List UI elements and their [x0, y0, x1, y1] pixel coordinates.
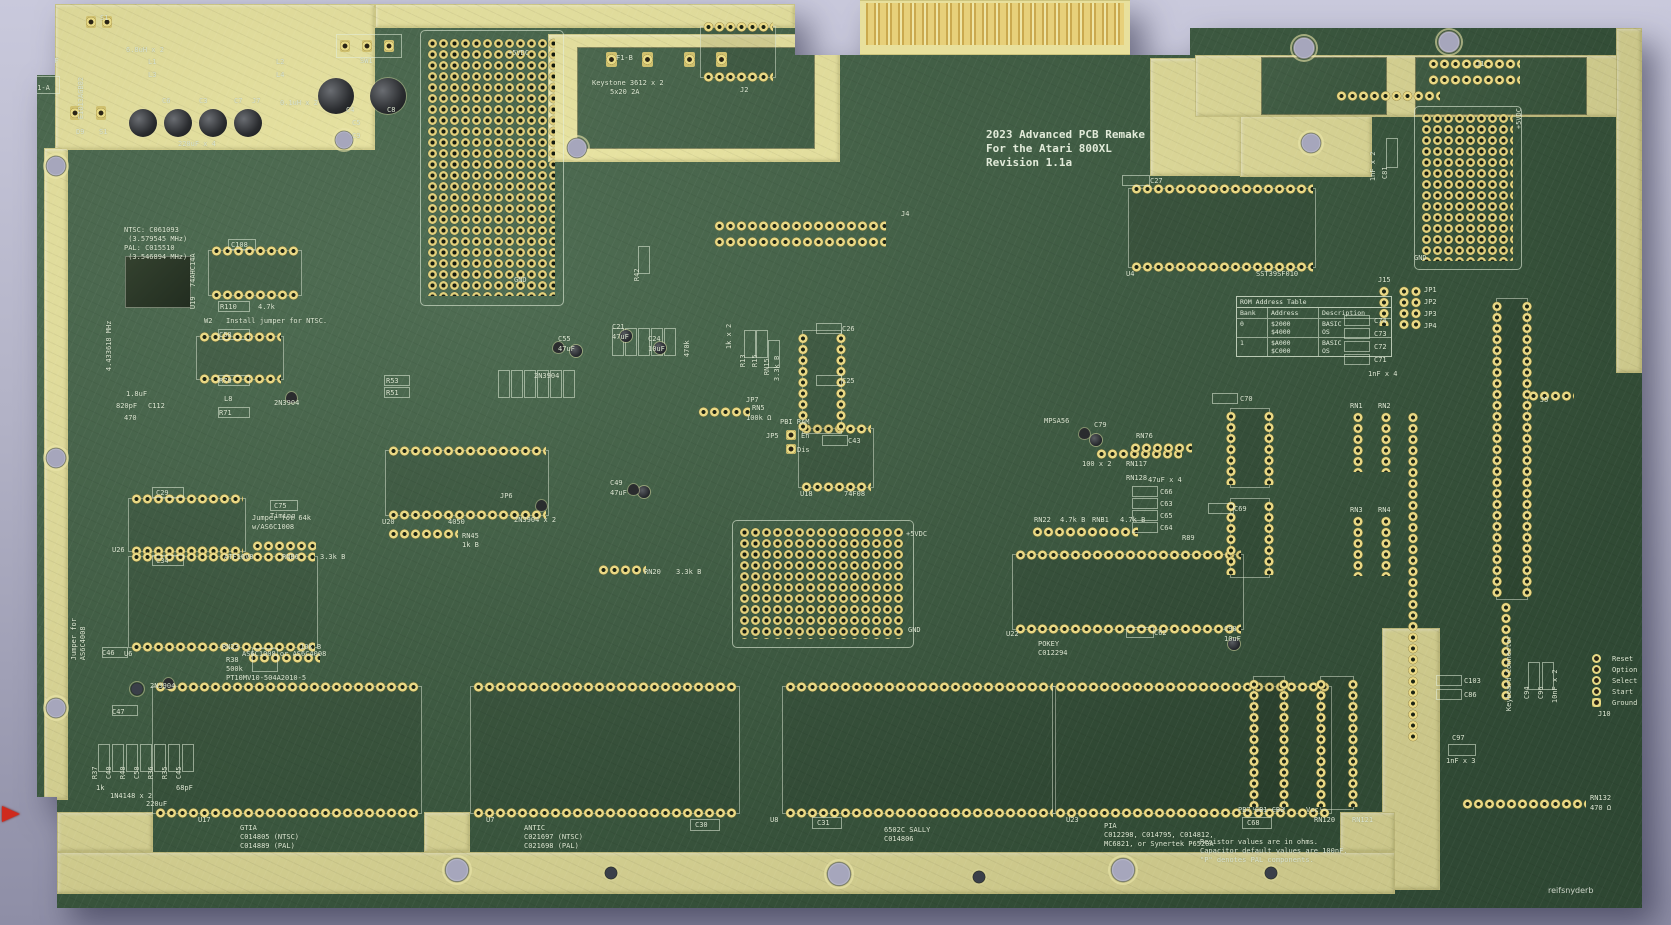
silkscreen-label: C86	[1464, 691, 1477, 700]
silkscreen-label: C26	[842, 325, 855, 334]
silkscreen-label: C29	[156, 489, 169, 498]
silkscreen-label: 1k	[96, 784, 104, 793]
silkscreen-label: 100k Ω	[746, 414, 771, 423]
silkscreen-label: 74F08	[844, 490, 865, 499]
silkscreen-label: 74AHC14A	[189, 253, 198, 287]
silkscreen-label: 10uF	[1224, 635, 1241, 644]
silkscreen-label: 220uF	[146, 800, 167, 809]
silkscreen-label: 10k B	[300, 643, 321, 652]
silkscreen-label: 100 x 2	[1082, 460, 1112, 469]
silkscreen-label: +5VDC	[1515, 108, 1524, 129]
silkscreen-label: 3.3k B	[320, 553, 345, 562]
silkscreen-label: RN15	[763, 358, 772, 375]
silkscreen-label: RN2	[1378, 402, 1391, 411]
silkscreen-label: Start	[1612, 688, 1633, 697]
silkscreen-label: 10uF	[648, 345, 665, 354]
silkscreen-label: C31	[817, 819, 830, 828]
silkscreen-label: 2N3904	[274, 399, 299, 408]
silkscreen-label: 1nF x 3	[1446, 757, 1476, 766]
silkscreen-label: Vcc	[1306, 806, 1319, 815]
silkscreen-label: R36	[147, 766, 156, 779]
silkscreen-label: Resistor values are in ohms. Capacitor d…	[1200, 838, 1348, 865]
silkscreen-label: SW1	[360, 57, 373, 66]
silkscreen-label: J10	[1598, 710, 1611, 719]
silkscreen-label: R89	[1182, 534, 1195, 543]
silkscreen-label: Install jumper for NTSC.	[226, 317, 327, 326]
silkscreen-label: U17	[198, 816, 211, 825]
silkscreen-label: 3.3k B	[773, 356, 782, 381]
silkscreen-label: 1nF x 2	[1369, 152, 1378, 182]
silkscreen-label: S1	[99, 128, 107, 137]
silkscreen-label: JP5	[766, 432, 779, 441]
pcb-board: 2023 Advanced PCB Remake For the Atari 8…	[0, 0, 1671, 925]
silkscreen-label: L8	[224, 395, 232, 404]
silkscreen-label: U18	[800, 490, 813, 499]
silkscreen-label: C63	[1160, 500, 1173, 509]
silkscreen-label: L2	[276, 58, 284, 67]
silkscreen-label: S1	[100, 14, 108, 23]
silkscreen-label: C79	[1094, 421, 1107, 430]
silkscreen-label: C69	[1234, 505, 1247, 514]
silkscreen-label: R51	[386, 389, 399, 398]
silkscreen-label: PIA C012298, C014795, C014812, MC6821, o…	[1104, 822, 1214, 849]
silkscreen-label: C68	[1247, 819, 1260, 828]
silkscreen-label: RN3	[1350, 506, 1363, 515]
silkscreen-label: C49	[610, 479, 623, 488]
silkscreen-label: C5	[352, 119, 360, 128]
silkscreen-label: C73	[1374, 330, 1387, 339]
silkscreen-label: RN120	[1314, 816, 1335, 825]
silkscreen-label: C108	[231, 241, 248, 250]
silkscreen-label: C9	[352, 132, 360, 141]
silkscreen-label: 4050	[448, 518, 465, 527]
silkscreen-label: C4	[346, 106, 354, 115]
silkscreen-label: 470 Ω	[1590, 804, 1611, 813]
silkscreen-label: 4.7k B	[1060, 516, 1085, 525]
silkscreen-label: POKEY C012294	[1038, 640, 1068, 658]
silkscreen-label: 1.8uF	[126, 390, 147, 399]
silkscreen-layer: S11nFF1-AEIO13AGB026.8uH x 2L1L3L2L40.1u…	[0, 0, 1671, 925]
silkscreen-label: RN4	[1378, 506, 1391, 515]
silkscreen-label: ANTIC C021697 (NTSC) C021698 (PAL)	[524, 824, 583, 851]
silkscreen-label: GTIA C014805 (NTSC) C014889 (PAL)	[240, 824, 299, 851]
silkscreen-label: C43	[848, 437, 861, 446]
silkscreen-label: Dis	[797, 446, 810, 455]
silkscreen-label: +5VDC	[508, 49, 529, 58]
silkscreen-label: J7	[252, 97, 260, 106]
silkscreen-label: C50	[133, 766, 142, 779]
silkscreen-label: Timing	[270, 512, 295, 521]
silkscreen-label: ATF16V8	[224, 553, 254, 562]
silkscreen-label: 5x20 2A	[610, 88, 640, 97]
silkscreen-label: 4.7k	[258, 303, 275, 312]
silkscreen-label: 4.7k B	[1120, 516, 1145, 525]
silkscreen-label: 0.1uH x 2	[280, 99, 318, 108]
silkscreen-label: RN20	[644, 568, 661, 577]
author-signature: reifsnyderb	[1548, 886, 1593, 895]
silkscreen-label: R71	[219, 409, 232, 418]
silkscreen-label: RN117	[1126, 460, 1147, 469]
silkscreen-label: 2N3904	[150, 682, 175, 691]
silkscreen-label: 6502C SALLY C014806	[884, 826, 930, 844]
silkscreen-label: R35	[161, 766, 170, 779]
silkscreen-label: C46	[102, 649, 115, 658]
silkscreen-label: U20	[382, 518, 395, 527]
silkscreen-label: RN121	[1352, 816, 1373, 825]
silkscreen-label: C47	[112, 708, 125, 717]
silkscreen-label: J15	[1378, 276, 1391, 285]
silkscreen-label: Option	[1612, 666, 1637, 675]
silkscreen-label: C7	[234, 97, 242, 106]
silkscreen-label: U22	[1006, 630, 1019, 639]
silkscreen-label: +5VDC	[906, 530, 927, 539]
silkscreen-label: J5	[1540, 396, 1548, 405]
silkscreen-label: 1nF x 4	[1368, 370, 1398, 379]
silkscreen-label: Ground	[1612, 699, 1637, 708]
silkscreen-label: C72	[1374, 343, 1387, 352]
silkscreen-label: RN5	[752, 404, 765, 413]
silkscreen-label: C62	[1154, 629, 1167, 638]
silkscreen-label: U23	[1066, 816, 1079, 825]
silkscreen-label: 1k x 2	[725, 324, 734, 349]
silkscreen-label: EIO13AGB02	[77, 77, 86, 119]
silkscreen-label: R37	[91, 766, 100, 779]
silkscreen-label: C45	[175, 766, 184, 779]
silkscreen-label: RN22	[1034, 516, 1051, 525]
silkscreen-label: 47uF x 4	[1148, 476, 1182, 485]
silkscreen-label: C81	[1381, 166, 1390, 179]
silkscreen-label: C3	[199, 97, 207, 106]
silkscreen-label: W2	[204, 317, 212, 326]
silkscreen-label: C27	[1150, 177, 1163, 186]
silkscreen-label: C6	[162, 97, 170, 106]
silkscreen-label: J9	[1133, 40, 1141, 49]
silkscreen-label: GND	[908, 626, 921, 635]
silkscreen-label: R53	[386, 377, 399, 386]
silkscreen-label: RN23	[222, 643, 239, 652]
silkscreen-label: 470k	[683, 340, 692, 357]
silkscreen-label: 3.3k B	[676, 568, 701, 577]
silkscreen-label: C55	[558, 335, 571, 344]
silkscreen-label: 47uF	[610, 489, 627, 498]
silkscreen-label: R42	[633, 268, 642, 281]
silkscreen-label: L1	[148, 58, 156, 67]
silkscreen-label: C66	[1160, 488, 1173, 497]
3d-viewer-canvas[interactable]: 2023 Advanced PCB Remake For the Atari 8…	[0, 0, 1671, 925]
silkscreen-label: 2N3904	[534, 372, 559, 381]
silkscreen-label: 68pF	[176, 784, 193, 793]
silkscreen-label: C21	[612, 323, 625, 332]
silkscreen-label: Reset	[1612, 655, 1633, 664]
silkscreen-label: R110	[220, 303, 237, 312]
silkscreen-label: JP6	[500, 492, 513, 501]
silkscreen-label: RN128	[1126, 474, 1147, 483]
silkscreen-label: D9	[76, 128, 84, 137]
silkscreen-label: 1nF	[46, 57, 59, 66]
silkscreen-label: C34	[156, 557, 169, 566]
silkscreen-label: J2	[740, 86, 748, 95]
silkscreen-label: C58	[219, 331, 232, 340]
silkscreen-label: F1-B	[616, 54, 633, 63]
silkscreen-label: C97	[1452, 734, 1465, 743]
silkscreen-label: Keystone 3612 x 2	[592, 79, 664, 88]
silkscreen-label: J1	[1476, 60, 1484, 69]
silkscreen-label: U7	[486, 816, 494, 825]
silkscreen-label: C74	[1374, 317, 1387, 326]
silkscreen-label: L3	[148, 71, 156, 80]
silkscreen-label: R38 500k PT10MV10-504A2010-5	[226, 656, 306, 683]
silkscreen-label: 47uF	[612, 333, 629, 342]
silkscreen-label: RN76	[1136, 432, 1153, 441]
pcb-board-wrap: 2023 Advanced PCB Remake For the Atari 8…	[0, 0, 1671, 925]
silkscreen-label: C64	[1160, 524, 1173, 533]
silkscreen-label: JP3	[1424, 310, 1437, 319]
silkscreen-label: 1	[1132, 28, 1136, 37]
silkscreen-label: 470	[124, 414, 137, 423]
silkscreen-label: Keyboard Connector	[1505, 635, 1514, 711]
silkscreen-label: RNB6	[282, 553, 299, 562]
red-arrow-marker	[2, 806, 20, 822]
silkscreen-label: JP1	[1424, 286, 1437, 295]
silkscreen-label: 2N3904 x 2	[514, 516, 556, 525]
silkscreen-label: En	[801, 432, 809, 441]
silkscreen-label: C70	[1240, 395, 1253, 404]
silkscreen-label: C98	[1224, 625, 1237, 634]
silkscreen-label: R15	[751, 354, 760, 367]
silkscreen-label: C96	[1537, 686, 1546, 699]
silkscreen-label: U8	[770, 816, 778, 825]
silkscreen-label: U19	[189, 296, 198, 309]
silkscreen-label: Select	[1612, 677, 1637, 686]
silkscreen-label: 4.433618 MHz	[105, 321, 114, 372]
silkscreen-label: C71	[1374, 356, 1387, 365]
silkscreen-label: J4	[901, 210, 909, 219]
silkscreen-label: GND	[1414, 254, 1427, 263]
silkscreen-label: R70	[219, 377, 232, 386]
silkscreen-label: RN132	[1590, 794, 1611, 803]
silkscreen-label: C24	[648, 335, 661, 344]
silkscreen-label: RN1	[1350, 402, 1363, 411]
silkscreen-label: RNB1	[1092, 516, 1109, 525]
silkscreen-label: MPSA56	[1044, 417, 1069, 426]
silkscreen-label: C40	[105, 766, 114, 779]
silkscreen-label: Jumper for AS6C4008	[70, 618, 88, 660]
silkscreen-label: 6.8uH x 2	[126, 46, 164, 55]
silkscreen-label: R13	[739, 354, 748, 367]
silkscreen-label: C112	[148, 402, 165, 411]
silkscreen-label: C103	[1464, 677, 1481, 686]
silkscreen-label: GND	[514, 276, 527, 285]
silkscreen-label: RN45	[462, 532, 479, 541]
silkscreen-label: C25	[842, 377, 855, 386]
silkscreen-label: L4	[276, 71, 284, 80]
silkscreen-label: PB7 CB1 CB2	[1238, 806, 1284, 815]
silkscreen-label: C65	[1160, 512, 1173, 521]
silkscreen-label: 220uF x 4	[178, 140, 216, 149]
silkscreen-label: JP2	[1424, 298, 1437, 307]
silkscreen-label: U4	[1126, 270, 1134, 279]
silkscreen-label: C8	[387, 106, 395, 115]
silkscreen-label: R40	[119, 766, 128, 779]
silkscreen-label: PBI RAM	[780, 418, 810, 427]
silkscreen-label: U26	[112, 546, 125, 555]
silkscreen-label: 820pF	[116, 402, 137, 411]
silkscreen-label: C94	[1523, 686, 1532, 699]
silkscreen-label: 1k B	[462, 541, 479, 550]
silkscreen-label: C30	[695, 821, 708, 830]
silkscreen-label: 10nF x 2	[1551, 669, 1560, 703]
silkscreen-label: F1-A	[33, 84, 50, 93]
silkscreen-label: 47uF	[558, 345, 575, 354]
silkscreen-label: SST39SF010	[1256, 270, 1298, 279]
silkscreen-label: JP4	[1424, 322, 1437, 331]
silkscreen-label: U6	[124, 650, 132, 659]
silkscreen-label: NTSC: C061093 (3.579545 MHz) PAL: C01551…	[124, 226, 187, 262]
silkscreen-label: C75	[274, 502, 287, 511]
